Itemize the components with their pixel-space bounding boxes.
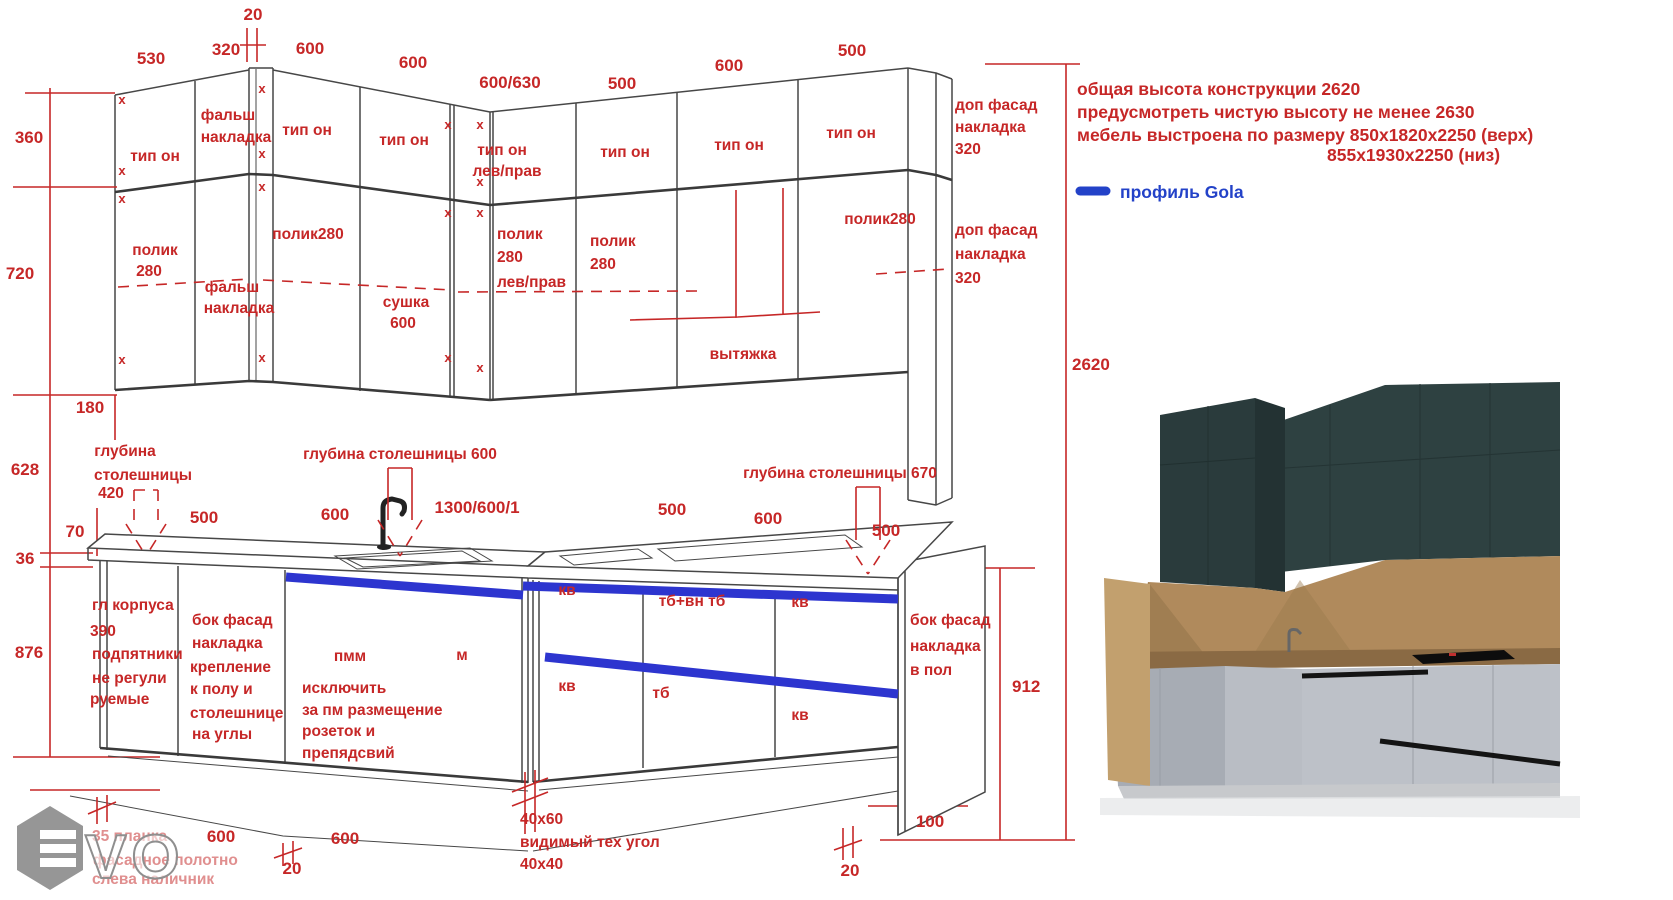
- corner-mark-3: x: [118, 191, 126, 206]
- dim-base-600b: 600: [754, 509, 782, 528]
- dim-top-600c: 600: [715, 56, 743, 75]
- corner-mark-9: x: [444, 117, 452, 132]
- upper-label-tip-on-6: тип он: [714, 137, 764, 154]
- corner-mark-7: x: [258, 179, 266, 194]
- render-floor-shadow: [1100, 796, 1580, 818]
- hood-marking-lines: [630, 188, 820, 320]
- base-label-pmm-e: препядсвий: [302, 745, 395, 762]
- dim-top-600-630: 600/630: [479, 73, 540, 92]
- dim-right-912: 912: [1012, 677, 1040, 696]
- dim-bottom-600b: 600: [331, 829, 359, 848]
- base-bottom-edges: [100, 747, 898, 782]
- note-line-4: 855х1930х2250 (низ): [1327, 145, 1500, 165]
- base-label-kv-4: кв: [791, 707, 808, 724]
- note-line-1: общая высота конструкции 2620: [1077, 79, 1361, 99]
- upper-label-polik-3c: лев/прав: [497, 274, 566, 291]
- render-side-panel: [1104, 578, 1150, 786]
- dim-left-180: 180: [76, 398, 104, 417]
- dim-left-70: 70: [66, 522, 85, 541]
- base-label-bf2-b: накладка: [910, 638, 981, 655]
- dim-right-2620: 2620: [1072, 355, 1110, 374]
- corner-mark-8: x: [258, 350, 266, 365]
- watermark-bar-2: [40, 844, 76, 853]
- faucet-icon: [383, 499, 405, 545]
- base-label-bf1-a: бок фасад: [192, 612, 273, 629]
- faucet-base: [377, 544, 391, 550]
- dim-left-360: 360: [15, 128, 43, 147]
- upper-label-tip-on-3: тип он: [379, 132, 429, 149]
- upper-label-dop-fasad-1b: накладка: [955, 119, 1026, 136]
- note-line-3: мебель выстроена по размеру 850х1820х225…: [1077, 125, 1533, 145]
- base-label-tb-vn: тб+вн тб: [659, 593, 726, 610]
- upper-label-polik-3b: 280: [497, 249, 523, 266]
- upper-label-polik-2: полик280: [272, 226, 343, 243]
- corner-mark-5: x: [258, 81, 266, 96]
- base-corner-verticals: [522, 578, 539, 783]
- base-label-gl-e: руемые: [90, 691, 150, 708]
- upper-label-sushka-a: сушка: [383, 294, 430, 311]
- base-label-kv-1: кв: [558, 582, 575, 599]
- upper-label-falsh-2a: фальш: [205, 279, 259, 296]
- base-label-gl-a: гл корпуса: [92, 597, 174, 614]
- upper-label-falsh-1a: фальш: [201, 107, 255, 124]
- watermark-bar-1: [40, 830, 76, 839]
- base-verticals-right-run: [643, 590, 898, 835]
- upper-label-tip-on-1: тип он: [130, 148, 180, 165]
- base-label-bf2-a: бок фасад: [910, 612, 991, 629]
- dim-left-36: 36: [16, 549, 35, 568]
- upper-label-polik-1b: 280: [136, 263, 162, 280]
- upper-label-polik-4b: 280: [590, 256, 616, 273]
- upper-label-dop-fasad-2b: накладка: [955, 246, 1026, 263]
- dim-top-320: 320: [212, 40, 240, 59]
- base-depth-420b: столешницы: [94, 467, 192, 484]
- corner-mark-12: x: [476, 117, 484, 132]
- dim-top-20: 20: [244, 5, 263, 24]
- right-end-panel: [898, 546, 985, 835]
- upper-label-tip-on-5: тип он: [600, 144, 650, 161]
- kitchen-drawing-canvas: 53032020600600600/6305006005003607201806…: [0, 0, 1673, 900]
- upper-label-tip-on-4a: тип он: [477, 142, 527, 159]
- base-note-tehugol: видимый тех угол: [520, 834, 660, 851]
- gola-strip-middle: [545, 657, 898, 694]
- upper-label-dop-fasad-2a: доп фасад: [955, 222, 1038, 239]
- base-depth-420c: 420: [98, 485, 124, 502]
- top-20-ticks: [240, 28, 266, 62]
- upper-label-polik-3a: полик: [497, 226, 543, 243]
- render-upper-left-side-face: [1255, 398, 1285, 592]
- dim-left-720: 720: [6, 264, 34, 283]
- upper-label-dop-fasad-1a: доп фасад: [955, 97, 1038, 114]
- corner-mark-1: x: [118, 92, 126, 107]
- base-label-pmm-a: пмм: [334, 648, 366, 665]
- base-label-bf1-c: крепление: [190, 659, 271, 676]
- corner-mark-10: x: [444, 205, 452, 220]
- upper-label-polik-1a: полик: [132, 242, 178, 259]
- plinth-lines: [70, 756, 898, 851]
- base-label-tb: тб: [652, 685, 669, 702]
- dim-top-500a: 500: [608, 74, 636, 93]
- base-note-40x60: 40x60: [520, 811, 563, 828]
- dim-bottom-20b: 20: [841, 861, 860, 880]
- dim-top-600a: 600: [296, 39, 324, 58]
- base-label-kv-2: кв: [791, 594, 808, 611]
- base-label-bf1-e: столешнице: [190, 705, 284, 722]
- dim-base-600a: 600: [321, 505, 349, 524]
- base-label-gl-b: 390: [90, 623, 116, 640]
- dim-left-628: 628: [11, 460, 39, 479]
- render-base-mid: [1225, 666, 1302, 795]
- render-cooktop-indicator: [1449, 653, 1456, 656]
- upper-label-polik-5: полик280: [844, 211, 915, 228]
- dim-left-876: 876: [15, 643, 43, 662]
- base-label-bf1-b: накладка: [192, 635, 263, 652]
- corner-mark-13: x: [476, 174, 484, 189]
- watermark-vo: VO: [85, 823, 185, 892]
- upper-right-panel-bottom: [908, 498, 952, 505]
- dim-bottom-20a: 20: [283, 859, 302, 878]
- kitchen-drawing-page: 53032020600600600/6305006005003607201806…: [0, 0, 1673, 900]
- dim-top-500b: 500: [838, 41, 866, 60]
- base-label-pmm-b: исключить: [302, 680, 386, 697]
- upper-label-dop-fasad-1c: 320: [955, 141, 981, 158]
- base-label-bf2-c: в пол: [910, 662, 952, 679]
- upper-label-tip-on-2: тип он: [282, 122, 332, 139]
- base-label-pmm-d: розеток и: [302, 723, 375, 740]
- watermark-bar-3: [40, 858, 76, 867]
- upper-label-falsh-1b: накладка: [201, 129, 272, 146]
- base-label-pmm-c: за пм размещение: [302, 702, 443, 719]
- note-line-2: предусмотреть чистую высоту не менее 263…: [1077, 102, 1475, 122]
- dim-base-500b: 500: [658, 500, 686, 519]
- upper-label-vytyazhka: вытяжка: [710, 346, 777, 363]
- base-note-40x40: 40x40: [520, 856, 563, 873]
- dim-base-500a: 500: [190, 508, 218, 527]
- upper-label-polik-4a: полик: [590, 233, 636, 250]
- corner-mark-6: x: [258, 146, 266, 161]
- upper-label-sushka-b: 600: [390, 315, 416, 332]
- dim-top-600b: 600: [399, 53, 427, 72]
- dim-bottom-600a: 600: [207, 827, 235, 846]
- kitchen-3d-render: [1100, 382, 1580, 818]
- dim-bottom-100: 100: [916, 812, 944, 831]
- upper-label-tip-on-7: тип он: [826, 125, 876, 142]
- render-base-right: [1302, 664, 1560, 795]
- base-depth-600: глубина столешницы 600: [303, 446, 497, 463]
- base-label-bf1-d: к полу и: [190, 681, 253, 698]
- watermark-logo: [17, 806, 83, 890]
- base-depth-670: глубина столешницы 670: [743, 465, 937, 482]
- base-label-bf1-f: на углы: [192, 726, 252, 743]
- corner-mark-14: x: [476, 205, 484, 220]
- upper-label-dop-fasad-2c: 320: [955, 270, 981, 287]
- base-label-m: м: [456, 647, 467, 664]
- corner-mark-4: x: [118, 352, 126, 367]
- legend-label: профиль Gola: [1120, 182, 1244, 202]
- base-label-gl-c: подпятники: [92, 646, 183, 663]
- base-depth-420a: глубина: [94, 443, 156, 460]
- upper-cabinet-bottom-edges: [115, 372, 908, 400]
- dim-top-530: 530: [137, 49, 165, 68]
- render-upper-right-run: [1255, 382, 1560, 575]
- corner-mark-2: x: [118, 163, 126, 178]
- depth-600-arrow-shaft: [388, 468, 412, 520]
- base-label-kv-3: кв: [558, 678, 575, 695]
- corner-mark-11: x: [444, 350, 452, 365]
- corner-mark-15: x: [476, 360, 484, 375]
- dim-base-500c: 500: [872, 521, 900, 540]
- upper-label-falsh-2b: накладка: [204, 300, 275, 317]
- base-label-gl-d: не регули: [92, 670, 167, 687]
- dim-base-1300: 1300/600/1: [434, 498, 519, 517]
